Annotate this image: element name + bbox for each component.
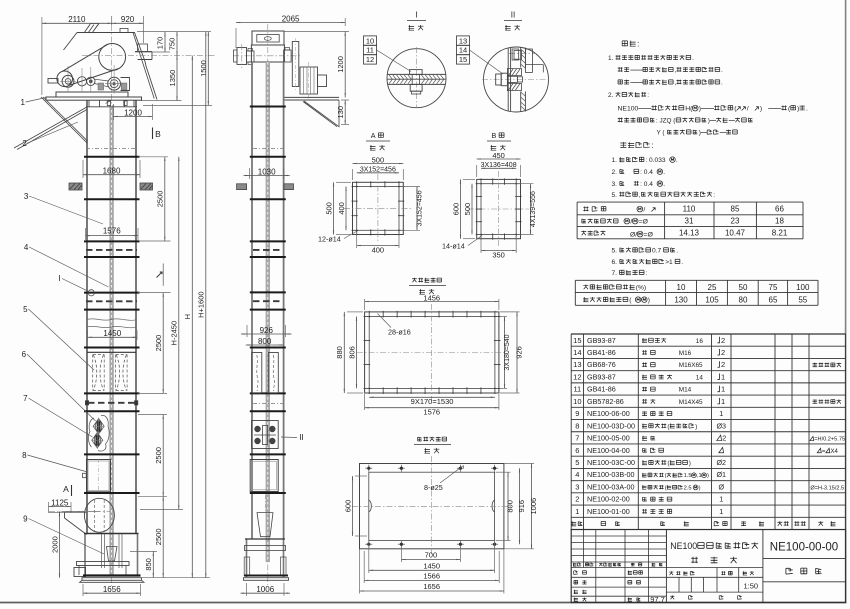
- svg-text:1500: 1500: [199, 60, 208, 77]
- svg-text:NE100-05-00: NE100-05-00: [587, 434, 630, 443]
- svg-text:75: 75: [769, 283, 778, 292]
- svg-text:Ø1: Ø1: [716, 470, 726, 479]
- svg-text:1: 1: [721, 397, 725, 406]
- svg-text::: :: [645, 270, 647, 277]
- svg-text:GB41-86: GB41-86: [587, 385, 616, 394]
- svg-text:II: II: [511, 11, 515, 20]
- svg-text:1.: 1.: [608, 55, 614, 62]
- svg-text:): ): [699, 130, 701, 137]
- svg-text:M16X65: M16X65: [679, 362, 703, 369]
- svg-text:: 0.4: : 0.4: [640, 169, 653, 176]
- svg-text:1576: 1576: [103, 226, 121, 235]
- svg-text:1450: 1450: [103, 329, 121, 338]
- svg-text:II: II: [299, 433, 303, 442]
- svg-text:806: 806: [347, 346, 356, 359]
- svg-text:GB41-86: GB41-86: [587, 348, 616, 357]
- svg-text:): ): [708, 118, 710, 125]
- svg-text:1: 1: [20, 98, 25, 107]
- svg-text:: JZQ (: : JZQ (: [656, 118, 676, 125]
- svg-text:500: 500: [324, 202, 333, 215]
- svg-text:800: 800: [258, 337, 272, 346]
- svg-text:3X152=456: 3X152=456: [417, 190, 424, 226]
- svg-text:15: 15: [573, 336, 581, 345]
- svg-text:Y (: Y (: [657, 130, 666, 137]
- svg-text:NE100-02-00: NE100-02-00: [587, 495, 630, 504]
- svg-text:12: 12: [366, 55, 374, 64]
- svg-text:2: 2: [721, 336, 725, 345]
- svg-text:12-ø14: 12-ø14: [318, 235, 341, 244]
- svg-text:1125: 1125: [51, 498, 69, 507]
- svg-text:,: ,: [674, 80, 676, 87]
- svg-text:800: 800: [506, 500, 515, 513]
- svg-text:1: 1: [721, 385, 725, 394]
- svg-text:I: I: [415, 11, 417, 20]
- svg-text:2500: 2500: [154, 529, 163, 546]
- svg-text:500: 500: [372, 155, 385, 164]
- svg-text:(: (: [665, 473, 667, 479]
- svg-text:NE100: NE100: [618, 106, 639, 113]
- svg-text:880: 880: [335, 346, 344, 359]
- svg-text:NE100-03D-00: NE100-03D-00: [587, 421, 635, 430]
- svg-text:=: =: [822, 449, 826, 455]
- svg-text:Ø3: Ø3: [716, 421, 726, 430]
- svg-text:12: 12: [573, 372, 581, 381]
- svg-text:750: 750: [168, 38, 177, 51]
- svg-text:B: B: [155, 129, 161, 139]
- svg-text:7: 7: [575, 434, 579, 443]
- svg-text:NE100-03A-00: NE100-03A-00: [587, 482, 635, 491]
- svg-text:1:50: 1:50: [743, 582, 758, 591]
- svg-text:1450: 1450: [423, 561, 440, 570]
- svg-text:A: A: [63, 484, 69, 494]
- svg-text:110: 110: [683, 205, 696, 214]
- svg-text::: :: [651, 141, 653, 150]
- svg-text:=Ø: =Ø: [639, 219, 649, 226]
- svg-text:9: 9: [23, 515, 28, 524]
- svg-text:13: 13: [459, 36, 467, 45]
- svg-text:/: /: [643, 207, 645, 214]
- svg-text:B: B: [492, 131, 497, 140]
- svg-text:66: 66: [775, 205, 784, 214]
- svg-text:6: 6: [22, 350, 27, 359]
- svg-text:8: 8: [22, 451, 27, 460]
- svg-text:4X139=556: 4X139=556: [530, 191, 537, 227]
- svg-text:920: 920: [121, 15, 135, 24]
- svg-text:GB68-76: GB68-76: [587, 360, 616, 369]
- svg-text:1656: 1656: [103, 585, 121, 594]
- svg-text:1576: 1576: [423, 408, 440, 417]
- svg-text:,: ,: [639, 192, 641, 199]
- svg-text:2065: 2065: [282, 14, 300, 23]
- svg-text:NE100-00-00: NE100-00-00: [770, 542, 838, 554]
- svg-text:6: 6: [575, 446, 579, 455]
- svg-text:1656: 1656: [423, 582, 440, 591]
- svg-text:5.: 5.: [612, 192, 618, 199]
- svg-text:3: 3: [575, 482, 579, 491]
- svg-text:170: 170: [156, 37, 165, 50]
- svg-text:X4: X4: [830, 449, 838, 455]
- svg-text:400: 400: [337, 202, 346, 215]
- svg-text:(: (: [665, 485, 667, 491]
- svg-text:80: 80: [739, 295, 748, 304]
- svg-text:130: 130: [674, 295, 688, 304]
- svg-text:Ø=H-3.15/2.5: Ø=H-3.15/2.5: [810, 485, 844, 491]
- svg-text:NE100-03B-00: NE100-03B-00: [587, 470, 635, 479]
- svg-text:14: 14: [573, 348, 581, 357]
- svg-text:.: .: [692, 55, 694, 62]
- svg-text:1006: 1006: [256, 585, 274, 594]
- svg-text:2: 2: [721, 360, 725, 369]
- svg-text:Ø/: Ø/: [630, 232, 637, 239]
- svg-text:6.: 6.: [612, 259, 618, 266]
- svg-text:): ): [695, 423, 697, 430]
- svg-text:: 0.4: : 0.4: [640, 181, 653, 188]
- svg-text:1.: 1.: [612, 157, 618, 164]
- svg-text:700: 700: [425, 551, 438, 560]
- svg-text:10.47: 10.47: [725, 229, 746, 238]
- svg-text:/: /: [747, 106, 749, 113]
- svg-text:105: 105: [705, 295, 719, 304]
- svg-text:11: 11: [366, 46, 374, 55]
- svg-text::: :: [647, 92, 649, 99]
- svg-text:10: 10: [677, 283, 686, 292]
- svg-text:): ): [689, 460, 691, 467]
- svg-text:H-2450: H-2450: [170, 321, 179, 346]
- svg-text:NE100-01-00: NE100-01-00: [587, 507, 630, 516]
- svg-text:.: .: [681, 259, 683, 266]
- svg-text:9: 9: [575, 409, 579, 418]
- svg-text:926: 926: [260, 326, 274, 335]
- svg-text:=Ø: =Ø: [644, 232, 654, 239]
- svg-text:2: 2: [722, 434, 726, 443]
- svg-text:926: 926: [515, 346, 524, 359]
- svg-text:7: 7: [23, 394, 28, 403]
- svg-text:2.5: 2.5: [684, 485, 692, 491]
- svg-text:2500: 2500: [154, 447, 163, 464]
- svg-text:13: 13: [573, 360, 581, 369]
- svg-text:NE100-04-00: NE100-04-00: [587, 446, 630, 455]
- svg-text:NE100-03C-00: NE100-03C-00: [587, 458, 635, 467]
- svg-text:GB5782-86: GB5782-86: [587, 397, 624, 406]
- svg-text:2.: 2.: [608, 92, 614, 99]
- svg-text:2.: 2.: [612, 169, 618, 176]
- svg-text:M16: M16: [679, 350, 692, 357]
- svg-text:2: 2: [721, 348, 725, 357]
- svg-text:1456: 1456: [423, 293, 440, 302]
- svg-text:97.7: 97.7: [650, 595, 665, 604]
- svg-text:.: .: [663, 181, 665, 188]
- svg-text:): ): [797, 106, 799, 113]
- svg-text:85: 85: [731, 205, 740, 214]
- svg-text:A: A: [371, 131, 376, 140]
- svg-text:9X170=1530: 9X170=1530: [411, 397, 454, 406]
- svg-text:): ): [760, 106, 762, 113]
- svg-text:1: 1: [719, 507, 723, 516]
- svg-text:5.: 5.: [612, 248, 618, 255]
- svg-text:16: 16: [696, 338, 704, 345]
- svg-text:3X136=408: 3X136=408: [481, 162, 517, 169]
- svg-text:,: ,: [674, 67, 676, 74]
- svg-text:25: 25: [708, 283, 717, 292]
- svg-text:18: 18: [775, 217, 784, 226]
- svg-text:M14: M14: [679, 387, 692, 394]
- svg-text:.: .: [663, 169, 665, 176]
- svg-text:3X152=456: 3X152=456: [360, 167, 396, 174]
- svg-text:450: 450: [492, 151, 505, 160]
- svg-text:8: 8: [575, 421, 579, 430]
- svg-text:3: 3: [24, 192, 29, 201]
- svg-text:14-ø14: 14-ø14: [442, 242, 465, 251]
- svg-text:50: 50: [739, 283, 748, 292]
- svg-text:1566: 1566: [423, 571, 440, 580]
- svg-text:): ): [648, 297, 650, 304]
- svg-text:55: 55: [798, 295, 807, 304]
- svg-text:1006: 1006: [529, 498, 538, 515]
- svg-text:4: 4: [24, 243, 29, 252]
- svg-text:H(: H(: [685, 106, 693, 113]
- svg-text:5: 5: [575, 458, 579, 467]
- svg-text:1350: 1350: [168, 70, 177, 87]
- svg-text:,1: ,1: [697, 473, 702, 479]
- svg-text:.: .: [721, 80, 723, 87]
- svg-text:1: 1: [575, 507, 579, 516]
- svg-text:8-ø25: 8-ø25: [424, 483, 443, 492]
- svg-text:1: 1: [719, 495, 723, 504]
- svg-text:1: 1: [721, 372, 725, 381]
- svg-text:14: 14: [459, 46, 467, 55]
- svg-text:2110: 2110: [68, 15, 86, 24]
- svg-text:130: 130: [336, 106, 345, 119]
- svg-text:): ): [699, 106, 701, 113]
- svg-text:600: 600: [343, 500, 352, 513]
- svg-text:2000: 2000: [50, 536, 59, 553]
- svg-text:.: .: [676, 248, 678, 255]
- svg-text:GB93-87: GB93-87: [587, 336, 616, 345]
- svg-text:3.: 3.: [612, 181, 618, 188]
- svg-text:Ø: Ø: [718, 482, 724, 491]
- svg-text::: :: [713, 192, 715, 199]
- svg-text:8.21: 8.21: [772, 229, 788, 238]
- svg-text:23: 23: [731, 217, 740, 226]
- svg-text:7.: 7.: [612, 270, 618, 277]
- svg-text:850: 850: [144, 558, 153, 571]
- svg-text:14: 14: [696, 374, 704, 381]
- svg-text:600: 600: [451, 203, 460, 216]
- svg-text:2: 2: [575, 495, 579, 504]
- svg-text:500: 500: [463, 203, 472, 216]
- svg-text:1030: 1030: [258, 167, 276, 176]
- svg-text:I: I: [58, 274, 60, 283]
- svg-text:NE100: NE100: [670, 541, 697, 551]
- svg-text:5: 5: [23, 305, 28, 314]
- svg-text:916: 916: [517, 500, 526, 513]
- svg-text:: 0.033: : 0.033: [645, 157, 665, 164]
- svg-text:GB93-87: GB93-87: [587, 372, 616, 381]
- svg-text:31: 31: [685, 217, 694, 226]
- svg-text:10: 10: [366, 36, 374, 45]
- svg-text:1200: 1200: [124, 108, 142, 117]
- svg-text:2: 2: [22, 139, 27, 148]
- svg-text:400: 400: [372, 245, 385, 254]
- svg-text:1: 1: [719, 409, 723, 418]
- svg-text:350: 350: [492, 250, 505, 259]
- svg-text:65: 65: [769, 295, 778, 304]
- svg-text:10: 10: [573, 397, 581, 406]
- svg-text:=H/0.2+5.75: =H/0.2+5.75: [814, 437, 845, 443]
- svg-text:NE100-06-00: NE100-06-00: [587, 409, 630, 418]
- svg-text:100: 100: [796, 283, 810, 292]
- svg-text:H+1600: H+1600: [197, 291, 206, 317]
- svg-text:1.5: 1.5: [684, 473, 692, 479]
- svg-text:2500: 2500: [156, 191, 165, 208]
- svg-text:.: .: [676, 157, 678, 164]
- svg-text:): ): [699, 485, 701, 491]
- svg-text:>1: >1: [665, 259, 673, 266]
- svg-text:14.13: 14.13: [679, 229, 700, 238]
- svg-text:3X180=540: 3X180=540: [504, 334, 511, 370]
- svg-text:.: .: [721, 67, 723, 74]
- svg-text:15: 15: [459, 55, 467, 64]
- svg-text:H: H: [183, 314, 192, 319]
- svg-text:): ): [707, 473, 709, 479]
- svg-text:1200: 1200: [336, 56, 345, 73]
- svg-text:(%): (%): [636, 285, 646, 292]
- svg-text:0.7: 0.7: [652, 248, 661, 255]
- svg-text:Ø2: Ø2: [716, 458, 726, 467]
- svg-text:4: 4: [575, 470, 579, 479]
- svg-text:1680: 1680: [103, 167, 121, 176]
- svg-text:2500: 2500: [154, 335, 163, 352]
- svg-text:M14X45: M14X45: [679, 399, 703, 406]
- svg-text:.: .: [806, 106, 808, 113]
- svg-text:11: 11: [573, 385, 581, 394]
- svg-text:28-ø16: 28-ø16: [388, 328, 411, 337]
- svg-text::: :: [637, 40, 639, 49]
